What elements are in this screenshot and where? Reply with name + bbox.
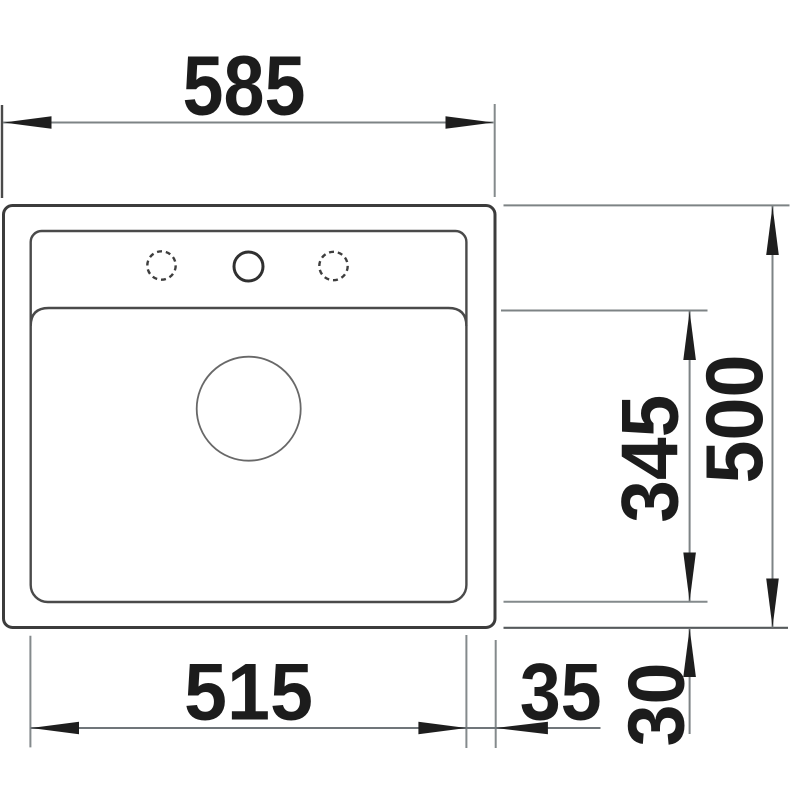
svg-text:35: 35: [520, 648, 602, 738]
svg-text:585: 585: [183, 39, 306, 133]
svg-text:500: 500: [690, 355, 780, 484]
svg-text:30: 30: [612, 663, 701, 747]
svg-text:345: 345: [606, 395, 696, 523]
svg-text:515: 515: [184, 648, 313, 738]
